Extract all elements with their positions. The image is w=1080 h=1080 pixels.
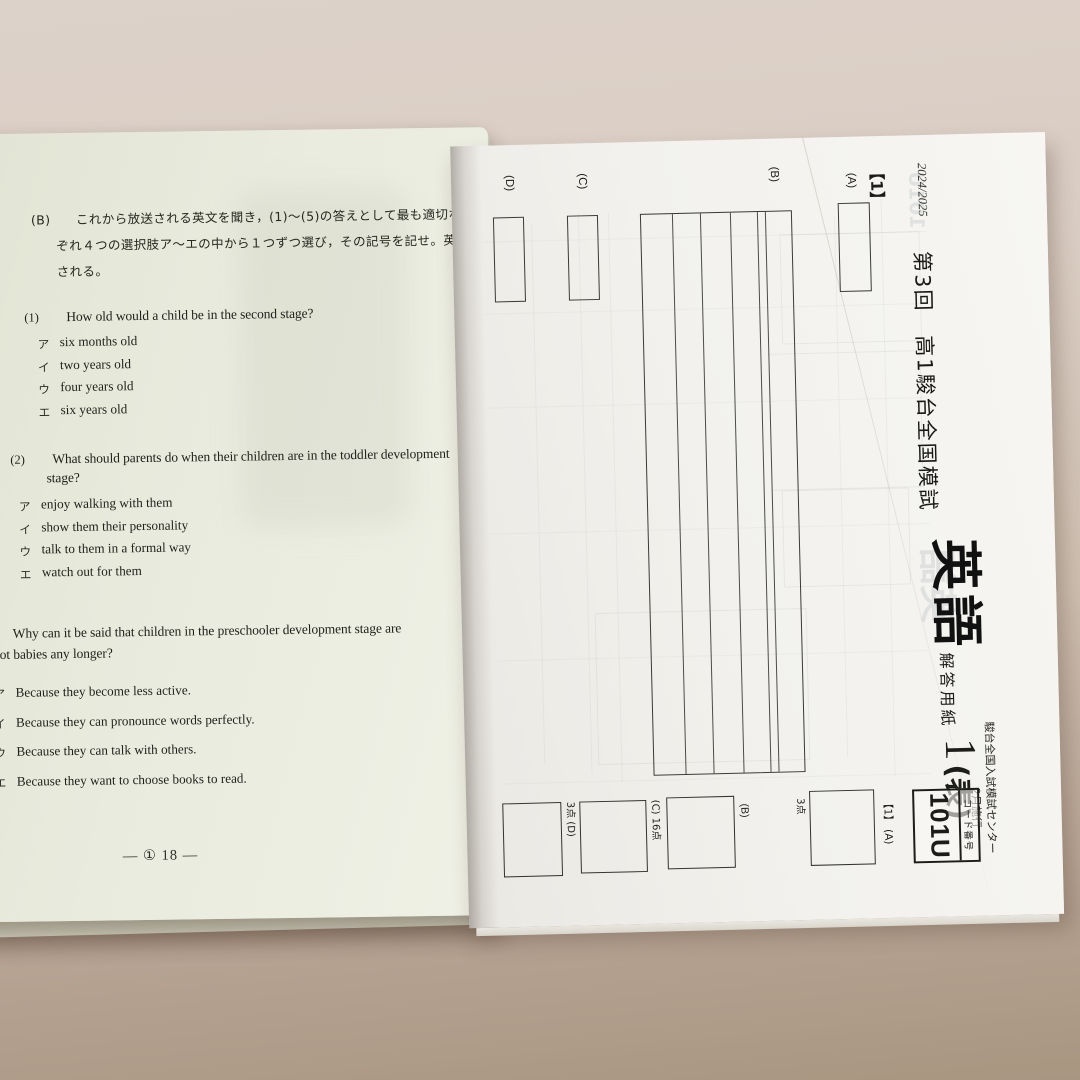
instruction-block: (B) これから放送される英文を聞き，(1)～(5)の答えとして最も適切なものを…: [29, 201, 480, 285]
writing-area-part-b: [640, 210, 806, 776]
choice-letter: ウ: [0, 738, 7, 768]
part-a-label: (A): [845, 173, 857, 189]
code-number-box: コード番号 101U: [912, 788, 981, 864]
ruled-line: [765, 212, 780, 772]
choice-text: Because they want to choose books to rea…: [17, 764, 247, 797]
organization-name: 駿台全国入試模試センター: [981, 721, 1000, 853]
ruled-line: [700, 213, 715, 773]
photo-scene: (B) これから放送される英文を聞き，(1)～(5)の答えとして最も適切なものを…: [0, 0, 1080, 1080]
question-2: (2) What should parents do when their ch…: [10, 446, 451, 585]
showthrough-ghost-line: [501, 773, 931, 785]
question-booklet-page: (B) これから放送される英文を聞き，(1)～(5)の答えとして最も適切なものを…: [0, 127, 499, 922]
score-box-c: [579, 800, 648, 874]
choice-text: Because they can talk with others.: [16, 735, 197, 767]
showthrough-ghost-line: [531, 225, 545, 765]
answer-box-part-c: [567, 215, 600, 301]
part-c-label: (C): [576, 173, 588, 189]
choice-text: show them their personality: [41, 515, 188, 540]
score-section-label: 【1】: [881, 798, 894, 826]
score-a-header: 【1】 (A): [880, 798, 896, 845]
answer-sheet: 101U 英語 2024/2025 第3回 高1駿台全国模試 英語 解答用紙 1…: [450, 132, 1064, 928]
sheet-type-label: 解答用紙: [936, 652, 962, 729]
ruled-line: [757, 212, 772, 772]
score-d-label: (D): [565, 821, 576, 837]
question-text: Why can it be said that children in the …: [13, 620, 402, 641]
score-c-points: 16点: [650, 818, 662, 841]
ruled-line: [730, 213, 745, 773]
choice-letter: イ: [0, 708, 6, 738]
question-1: (1) How old would a child be in the seco…: [24, 306, 315, 423]
choice-row: エBecause they want to choose books to re…: [0, 762, 404, 797]
choice-list: アenjoy walking with them イshow them thei…: [19, 489, 451, 585]
question-number: (3): [0, 626, 1, 642]
choice-list: アsix months old イtwo years old ウfour yea…: [38, 329, 315, 423]
question-text-continued: stage?: [46, 465, 449, 487]
question-text: How old would a child be in the second s…: [66, 306, 313, 325]
page-number: — ① 18 —: [123, 847, 199, 865]
subject-title: 英語: [922, 537, 1000, 651]
choice-text: watch out for them: [42, 561, 142, 585]
score-box-a: [809, 789, 876, 866]
instruction-label: (B): [31, 207, 51, 233]
choice-text: four years old: [60, 376, 134, 400]
choice-text: talk to them in a formal way: [41, 537, 191, 562]
answer-box-part-a: [838, 202, 872, 292]
score-a-label: (A): [882, 829, 894, 845]
section-1-label: 【1】: [866, 164, 891, 208]
code-number-label: コード番号: [958, 790, 979, 860]
ruled-line: [672, 214, 687, 774]
choice-letter: ウ: [19, 540, 33, 563]
score-d-points: 3点: [564, 802, 575, 819]
choice-letter: ア: [38, 332, 52, 355]
question-3: (3) Why can it be said that children in …: [0, 620, 404, 797]
score-box-d: [502, 802, 563, 877]
choice-text: two years old: [60, 354, 131, 377]
code-number-value: 101U: [923, 790, 960, 861]
score-d-header: 3点 (D): [564, 802, 580, 837]
sheet-number: 1: [935, 738, 987, 761]
choice-row: エwatch out for them: [20, 556, 451, 585]
question-text-continued: not babies any longer?: [0, 641, 402, 663]
instruction-line: される。: [30, 253, 480, 285]
choice-letter: エ: [0, 767, 7, 797]
choice-text: six years old: [60, 399, 127, 422]
question-number: (1): [24, 309, 54, 325]
answer-box-part-d: [493, 217, 526, 303]
choice-text: Because they can pronounce words perfect…: [16, 705, 255, 738]
question-number: (2): [10, 451, 40, 467]
score-c-header: (C) 16点: [649, 800, 665, 841]
score-box-b: [666, 796, 736, 870]
score-c-label: (C): [649, 800, 660, 815]
choice-letter: イ: [19, 517, 33, 540]
school-year: 2024/2025: [914, 163, 930, 217]
choice-row: エsix years old: [38, 396, 314, 422]
score-a-points: 3点: [794, 798, 809, 815]
part-b-label: (B): [768, 166, 780, 182]
score-b-label: (B): [738, 803, 750, 817]
choice-text: six months old: [60, 331, 138, 355]
choice-letter: エ: [20, 562, 34, 585]
choice-letter: ウ: [38, 377, 52, 400]
choice-list: アBecause they become less active. イBecau…: [0, 673, 404, 797]
paper-stack-edge: [476, 914, 1059, 936]
choice-letter: イ: [38, 355, 52, 378]
exam-title: 第3回 高1駿台全国模試: [908, 251, 944, 512]
part-d-label: (D): [503, 175, 515, 191]
choice-letter: ア: [0, 679, 6, 709]
choice-text: Because they become less active.: [15, 676, 191, 708]
choice-letter: ア: [19, 495, 33, 518]
choice-text: enjoy walking with them: [41, 493, 173, 517]
choice-letter: エ: [38, 400, 52, 423]
question-text: What should parents do when their childr…: [52, 446, 449, 468]
